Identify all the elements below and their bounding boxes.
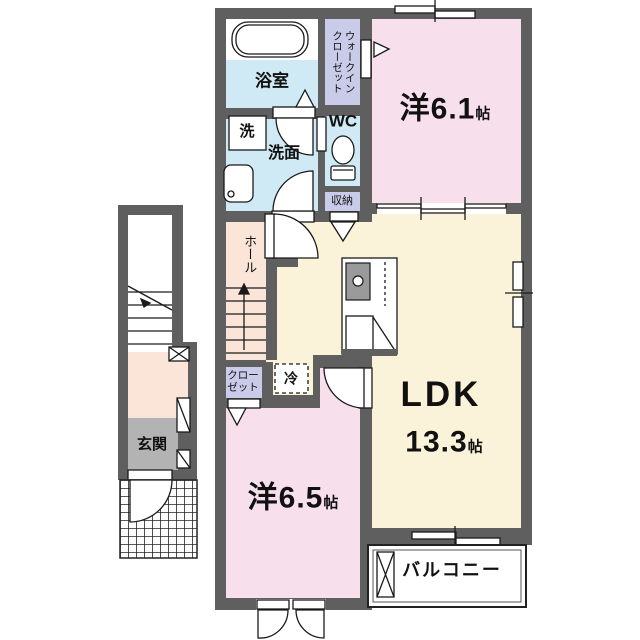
ldk-size-label: 13.3帖 xyxy=(405,426,482,459)
wall-stairs-ldk xyxy=(266,257,277,360)
bathroom-door-sill xyxy=(273,107,315,118)
washroom-label: 洗面 xyxy=(268,145,300,163)
shaft-symbol xyxy=(169,347,189,361)
entrance-label: 玄関 xyxy=(137,437,167,454)
balcony-shaft-symbol xyxy=(377,552,394,597)
french-door-arc-left xyxy=(258,610,288,638)
ldk-label: LDK xyxy=(401,376,482,415)
hall-label: ホール xyxy=(242,235,256,274)
refrigerator-label: 冷 xyxy=(284,371,298,386)
french-door-leaf-left xyxy=(257,600,289,609)
western-room-6-1-label: 洋6.1帖 xyxy=(400,93,491,126)
closet-door-sill xyxy=(228,399,260,408)
french-door-arc-right xyxy=(296,610,324,638)
wc-door xyxy=(317,117,326,151)
western-room-6-5-label: 洋6.5帖 xyxy=(248,482,339,515)
bathtub xyxy=(232,22,308,57)
washbasin xyxy=(224,165,253,202)
floorplan-drawing xyxy=(0,0,640,640)
entrance-step xyxy=(128,470,172,480)
floorplan: 浴室 ウォークイン クローゼット 洋6.1帖 洗 洗面 WC 収納 ホール クロ… xyxy=(0,0,640,640)
kitchen-faucet xyxy=(353,276,363,286)
laundry-label: 洗 xyxy=(239,124,254,141)
closet-label: クロー ゼット xyxy=(227,370,259,393)
french-door-leaf-right xyxy=(293,600,325,609)
wall-kitchen-bedroom xyxy=(313,355,372,368)
storage-door-sill xyxy=(330,212,358,221)
bathroom-label: 浴室 xyxy=(255,73,289,92)
toilet xyxy=(331,136,355,180)
balcony-label: バルコニー xyxy=(402,561,502,581)
walk-in-closet-label: ウォークイン クローゼット xyxy=(330,31,355,94)
wic-door-leaf xyxy=(361,40,371,78)
kitchen-counter xyxy=(342,258,397,356)
storage-label: 収納 xyxy=(331,195,353,207)
wc-label: WC xyxy=(329,113,357,132)
